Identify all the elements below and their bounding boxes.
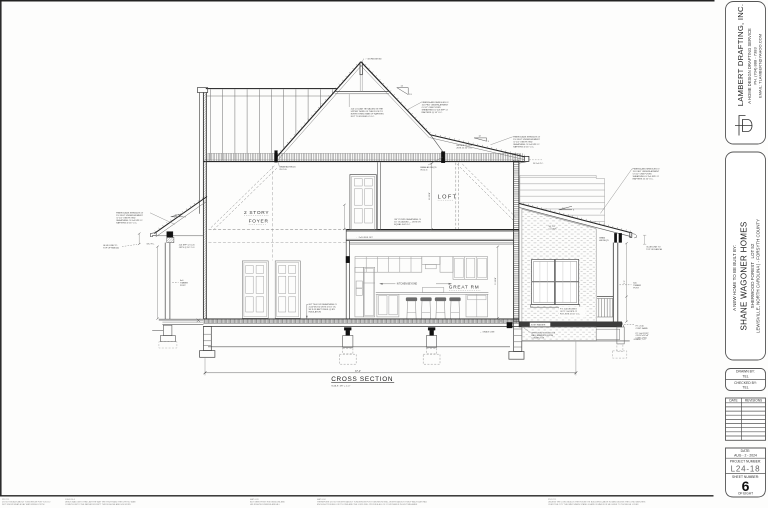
svg-text:POST: POST: [633, 287, 639, 289]
svg-text:GREAT RM: GREAT RM: [449, 284, 480, 289]
svg-text:NOT KNOW WHAT A DAY MAY BRING: NOT KNOW WHAT A DAY MAY BRING FORTH: [2, 503, 45, 506]
svg-text:IN CLG: IN CLG: [280, 169, 287, 171]
svg-text:INSULATION: INSULATION: [309, 310, 322, 313]
svg-text:LEWISVILLE, NORTH CAROLINA | -: LEWISVILLE, NORTH CAROLINA | - FORSYTH C…: [755, 219, 760, 333]
svg-text:OF EIGHT: OF EIGHT: [738, 492, 753, 496]
svg-text:A NEW HOME TO BE BUILT BY:: A NEW HOME TO BE BUILT BY:: [732, 245, 737, 311]
svg-text:JOIST HANGER: JOIST HANGER: [531, 324, 546, 327]
svg-text:RAFTERS @ 16" O.C.: RAFTERS @ 16" O.C.: [422, 111, 443, 114]
svg-text:CONC. FTG.: CONC. FTG.: [636, 338, 648, 340]
svg-text:CONT. BAND: CONT. BAND: [636, 327, 649, 330]
svg-text:CHECKED BY:: CHECKED BY:: [734, 381, 757, 385]
svg-text:37'-4": 37'-4": [355, 370, 361, 373]
svg-text:ENOUGH TROUBLE OF ITS OWN AND: ENOUGH TROUBLE OF ITS OWN AND THE LORD W…: [317, 503, 418, 506]
svg-text:IN CLG: IN CLG: [420, 170, 427, 172]
svg-text:TEL: TEL: [742, 374, 748, 378]
svg-text:LOFT: LOFT: [438, 194, 458, 200]
svg-text:×: ×: [500, 319, 502, 323]
svg-text:L24-18: L24-18: [731, 465, 761, 474]
svg-text:EMAIL: TLAMBERT@YAHOO.COM: EMAIL: TLAMBERT@YAHOO.COM: [757, 34, 762, 98]
svg-text:RAFTERS @ 16" O.C.: RAFTERS @ 16" O.C.: [513, 145, 534, 148]
svg-text:AS REQ'D: AS REQ'D: [599, 239, 609, 242]
svg-text:RAFTERS @ 16" O.C.: RAFTERS @ 16" O.C.: [633, 177, 654, 180]
svg-text:POST: POST: [180, 285, 186, 287]
svg-text:KITCHEN BEYOND: KITCHEN BEYOND: [397, 284, 418, 286]
svg-text:SHANE WAGONER HOMES: SHANE WAGONER HOMES: [739, 222, 748, 331]
svg-text:SCALE: 3/8" = 1'-0": SCALE: 3/8" = 1'-0": [331, 385, 350, 388]
svg-text:COMETH UNTO THE FATHER EXCEPT: COMETH UNTO THE FATHER EXCEPT THROUGH ME…: [65, 503, 131, 506]
svg-text:SHERWOOD FOREST LOT 52: SHERWOOD FOREST LOT 52: [750, 243, 755, 308]
svg-text:DATE:: DATE:: [741, 449, 751, 453]
svg-text:DRAWN BY:: DRAWN BY:: [736, 370, 755, 374]
svg-text:PROJECT NUMBER:: PROJECT NUMBER:: [730, 460, 762, 464]
svg-text:3'-0": 3'-0": [624, 280, 626, 284]
svg-text:FOYER: FOYER: [249, 219, 269, 225]
svg-text:EQUAL 4'x8' O.C.: EQUAL 4'x8' O.C.: [394, 223, 411, 226]
svg-text:JSTS @ 16" O.C.: JSTS @ 16" O.C.: [456, 148, 473, 150]
svg-text:NOT TO EXCEED 4' O.C.: NOT TO EXCEED 4' O.C.: [351, 116, 375, 118]
svg-text:8/12 P.C.: 8/12 P.C.: [147, 244, 156, 246]
svg-text:⌐ 3/4 RIDGE BD: ⌐ 3/4 RIDGE BD: [366, 58, 383, 60]
svg-text:LAMBERT DRAFTING, INC.: LAMBERT DRAFTING, INC.: [736, 4, 745, 107]
svg-text:TEL: TEL: [742, 386, 748, 390]
svg-text:JSTS @ 16" O.C.: JSTS @ 16" O.C.: [179, 247, 196, 249]
svg-text:DATE: DATE: [729, 399, 737, 403]
svg-text:9'-1 1/8": 9'-1 1/8": [495, 277, 497, 285]
svg-text:FLR JSTS @ 16" O.C.: FLR JSTS @ 16" O.C.: [560, 313, 580, 315]
svg-text:HIS RIGHTEOUSNESS AND ALL: HIS RIGHTEOUSNESS AND ALL: [250, 503, 281, 506]
svg-text:AUG - 2 - 2024: AUG - 2 - 2024: [734, 454, 757, 458]
svg-text:REVISIONS: REVISIONS: [745, 399, 762, 403]
svg-text:W/ 1x6 P.C.: W/ 1x6 P.C.: [533, 163, 544, 165]
svg-text:TOP OF FASCIA: TOP OF FASCIA: [646, 248, 662, 251]
svg-text:RAFTERS @ 16" O.C.: RAFTERS @ 16" O.C.: [116, 221, 137, 224]
svg-text:8'-1 1/8": 8'-1 1/8": [429, 192, 431, 200]
svg-text:← GRADE LINE: ← GRADE LINE: [480, 331, 495, 334]
svg-text:2 STORY: 2 STORY: [244, 210, 269, 216]
svg-text:OVER THE CITY THE WATCHMEN STA: OVER THE CITY THE WATCHMEN STAND GUARD I…: [548, 503, 639, 506]
svg-text:TOP OF FASCIA: TOP OF FASCIA: [103, 247, 119, 250]
svg-text:← 2x10 FLR JST: ← 2x10 FLR JST: [356, 237, 373, 239]
